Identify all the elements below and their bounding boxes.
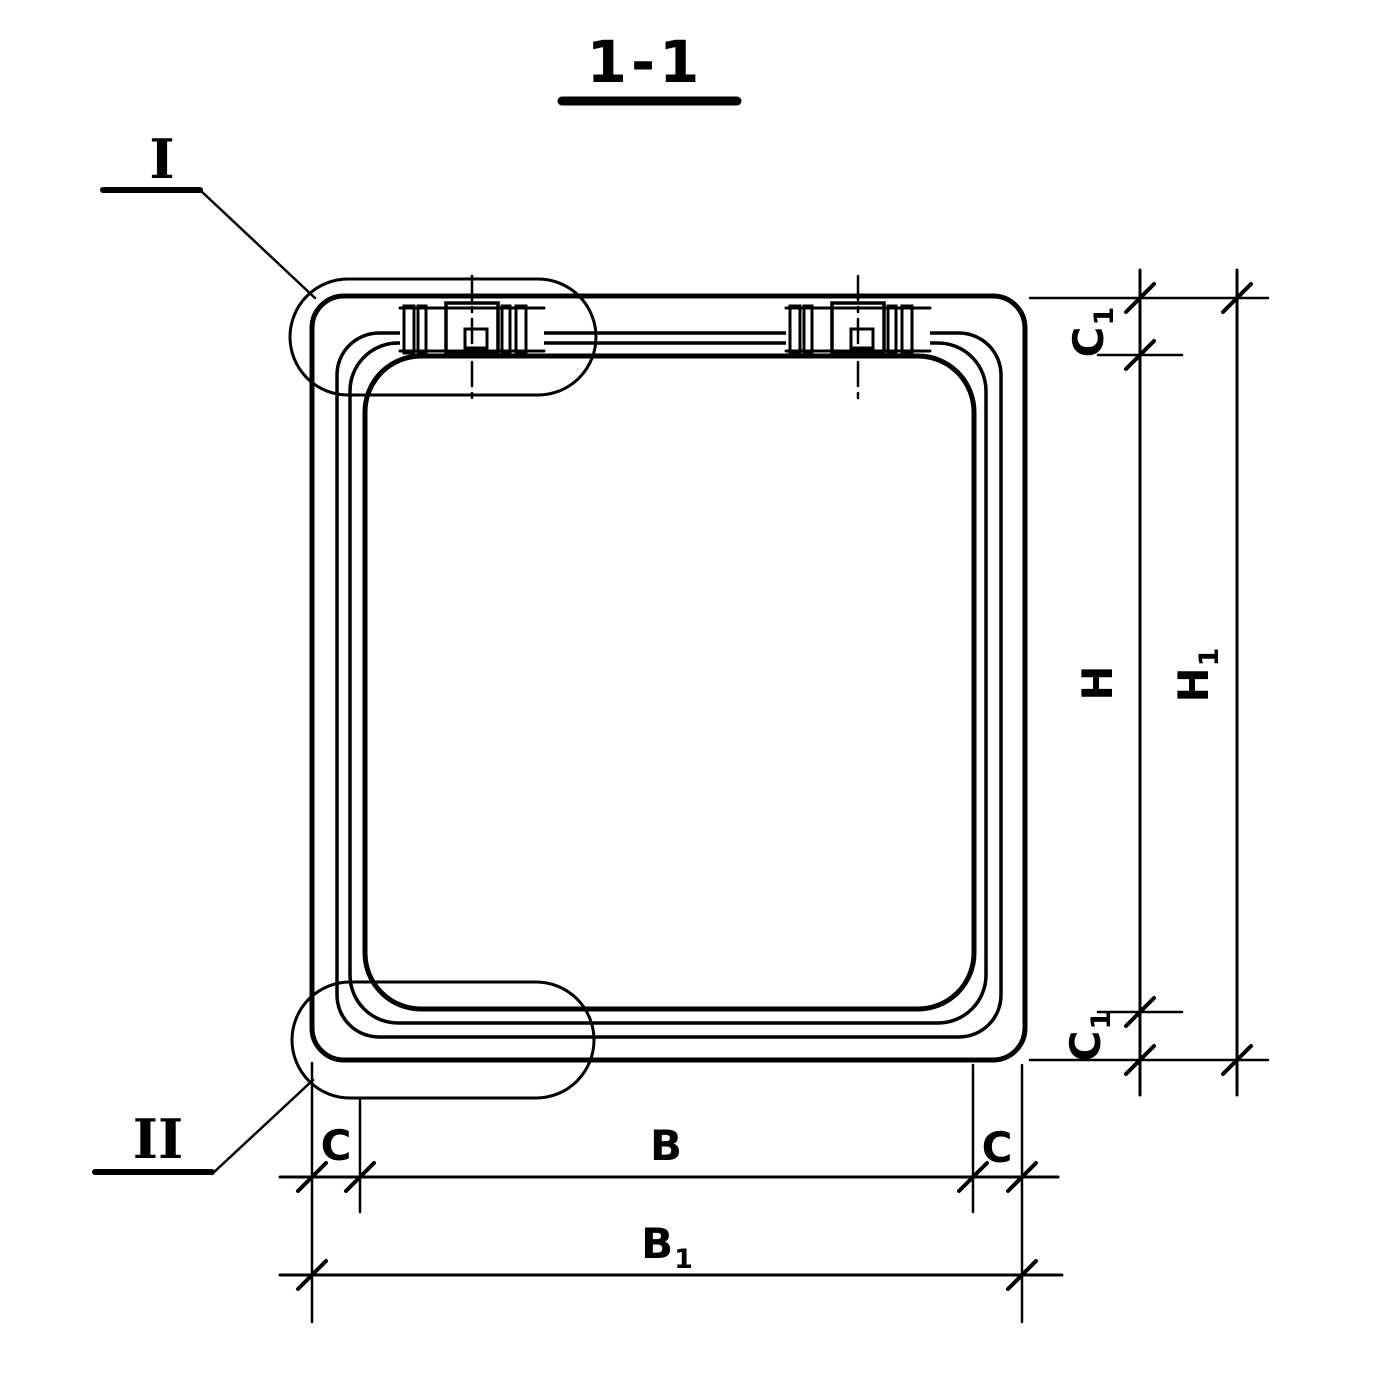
- dim-label-b1-sub: 1: [674, 1244, 693, 1275]
- dim-label-c1-top: C1: [1064, 307, 1120, 358]
- dimension-ticks: [298, 284, 1251, 1289]
- detail-1-leader-line: [200, 190, 315, 298]
- dim-label-c1-bottom-sub: 1: [1086, 1011, 1117, 1030]
- dim-label-h1-sub: 1: [1194, 648, 1225, 667]
- dimension-lines: [280, 270, 1237, 1275]
- dim-label-c1-top-sub: 1: [1089, 307, 1120, 326]
- view-title: 1-1: [587, 28, 704, 96]
- dim-label-c1-top-base: C: [1064, 326, 1113, 357]
- frame-inner-face: [365, 356, 974, 1009]
- detail-2-label-text: II: [133, 1107, 184, 1171]
- detail-1-label-text: I: [149, 127, 174, 191]
- dim-label-b: B: [650, 1121, 682, 1170]
- dim-label-h1: H1: [1169, 648, 1225, 703]
- dim-label-c-left: C: [321, 1121, 352, 1170]
- extension-lines: [312, 298, 1268, 1322]
- dim-label-h: H: [1073, 665, 1122, 700]
- frame-mid-line-1: [337, 333, 1001, 1037]
- dim-label-b1: B1: [641, 1219, 693, 1275]
- dim-label-c-left-base: C: [321, 1121, 352, 1170]
- drawing-sheet: 1-1 I II C1 H H1 C1 C B C B1: [0, 0, 1374, 1379]
- detail-2-leader-line: [212, 1080, 313, 1174]
- dim-label-h-base: H: [1073, 665, 1122, 700]
- frame-rings: [312, 296, 1025, 1060]
- dim-label-b1-base: B: [641, 1219, 673, 1268]
- section-1-1-drawing: 1-1 I II C1 H H1 C1 C B C B1: [0, 0, 1374, 1379]
- frame-mid-line-2: [350, 343, 986, 1023]
- frame-outer-face: [312, 296, 1025, 1060]
- dim-label-b-base: B: [650, 1121, 682, 1170]
- detail-1-label: I: [149, 127, 174, 191]
- detail-2-label: II: [133, 1107, 184, 1171]
- dim-label-c1-bottom: C1: [1061, 1011, 1117, 1062]
- dim-label-c-right: C: [982, 1123, 1013, 1172]
- dim-label-c-right-base: C: [982, 1123, 1013, 1172]
- dim-label-h1-base: H: [1169, 667, 1218, 702]
- view-title-text: 1-1: [587, 28, 704, 96]
- dim-label-c1-bottom-base: C: [1061, 1030, 1110, 1061]
